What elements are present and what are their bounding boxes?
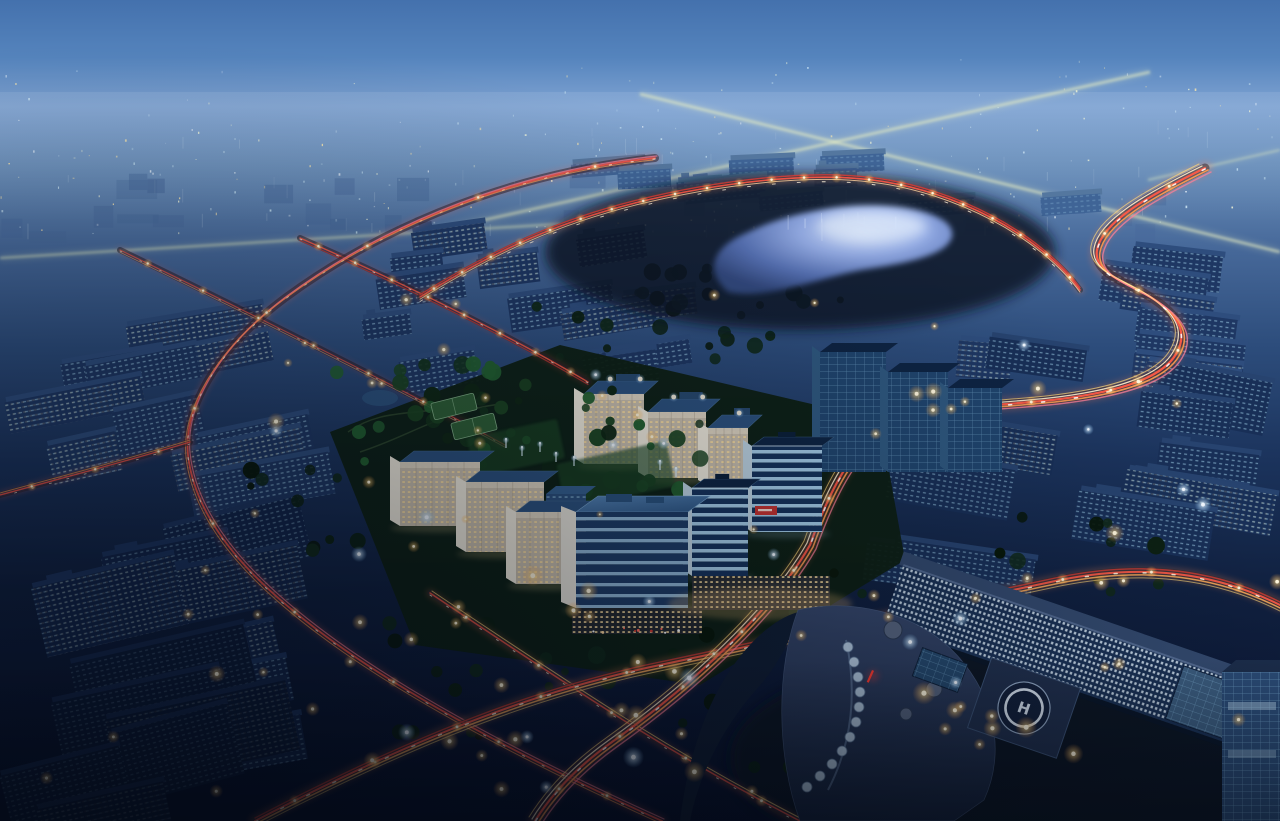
scene-canvas: H — [0, 0, 1280, 821]
night-city-rendering: H — [0, 0, 1280, 821]
vignette-bottom — [0, 660, 1280, 821]
fx-layer — [0, 0, 1280, 821]
